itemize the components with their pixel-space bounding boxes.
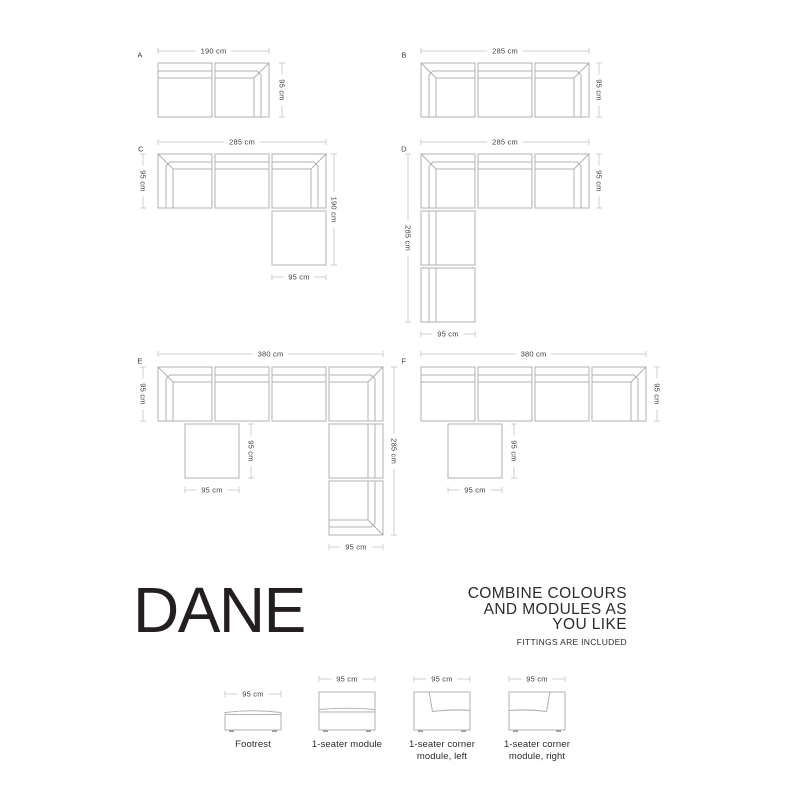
svg-text:95 cm: 95 cm [139,383,148,404]
svg-text:95 cm: 95 cm [336,675,357,684]
svg-text:380 cm: 380 cm [521,350,547,359]
svg-text:95 cm: 95 cm [278,79,287,100]
headline-line: AND MODULES AS [468,602,627,618]
legend-drawing-one-seater-corner-module-right: 95 cm [509,674,565,732]
svg-text:190 cm: 190 cm [330,197,339,223]
fittings-note: FITTINGS ARE INCLUDED [468,638,627,647]
config-letter: B [401,51,406,60]
config-letter: E [137,357,142,366]
config-a-diagram: A190 cm95 cm [137,46,287,117]
svg-text:95 cm: 95 cm [526,675,547,684]
legend-label-line: 1-seater corner [504,739,570,751]
svg-text:285 cm: 285 cm [229,138,255,147]
legend-label-1-seater-module: 1-seater module [312,739,382,751]
legend-drawing-one-seater-module: 95 cm [319,674,375,732]
svg-text:95 cm: 95 cm [242,690,263,699]
config-letter: D [401,145,407,154]
config-c-diagram: C285 cm95 cm190 cm95 cm [138,137,339,282]
config-d-diagram: D285 cm95 cm285 cm95 cm [401,137,604,339]
headline: COMBINE COLOURS AND MODULES AS YOU LIKE … [468,586,627,647]
diagram-canvas: A190 cm95 cmB285 cm95 cmC285 cm95 cm190 … [0,0,800,800]
svg-text:285 cm: 285 cm [492,47,518,56]
product-spec-sheet: A190 cm95 cmB285 cm95 cmC285 cm95 cm190 … [0,0,800,800]
svg-text:95 cm: 95 cm [288,273,309,282]
svg-text:95 cm: 95 cm [345,543,366,552]
svg-text:95 cm: 95 cm [595,170,604,191]
headline-line: COMBINE COLOURS [468,586,627,602]
svg-text:95 cm: 95 cm [247,440,256,461]
legend-drawing-one-seater-corner-module-left: 95 cm [414,674,470,732]
config-letter: F [402,357,407,366]
legend-label-line: module, left [409,751,475,763]
product-title: DANE [133,578,305,642]
legend-label-corner-module-left: 1-seater corner module, left [409,739,475,762]
svg-text:95 cm: 95 cm [201,486,222,495]
legend-label-corner-module-right: 1-seater corner module, right [504,739,570,762]
svg-text:95 cm: 95 cm [510,440,519,461]
svg-text:285 cm: 285 cm [492,138,518,147]
legend-label-line: Footrest [235,739,271,751]
svg-text:95 cm: 95 cm [431,675,452,684]
config-letter: C [138,145,144,154]
config-b-diagram: B285 cm95 cm [401,46,604,117]
legend-label-footrest: Footrest [235,739,271,751]
svg-text:190 cm: 190 cm [201,47,227,56]
svg-text:95 cm: 95 cm [595,79,604,100]
legend-drawing-footrest: 95 cm [225,689,281,732]
svg-text:95 cm: 95 cm [653,383,662,404]
svg-text:95 cm: 95 cm [139,170,148,191]
legend-label-line: module, right [504,751,570,763]
config-letter: A [137,51,142,60]
legend-label-line: 1-seater module [312,739,382,751]
svg-text:95 cm: 95 cm [464,486,485,495]
config-f-diagram: F380 cm95 cm95 cm95 cm [402,349,662,495]
legend-label-line: 1-seater corner [409,739,475,751]
svg-text:285 cm: 285 cm [390,438,399,464]
svg-text:380 cm: 380 cm [258,350,284,359]
svg-text:95 cm: 95 cm [437,330,458,339]
config-e-diagram: E380 cm95 cm95 cm95 cm285 cm95 cm [137,349,399,552]
headline-line: YOU LIKE [468,617,627,633]
svg-text:285 cm: 285 cm [404,225,413,251]
